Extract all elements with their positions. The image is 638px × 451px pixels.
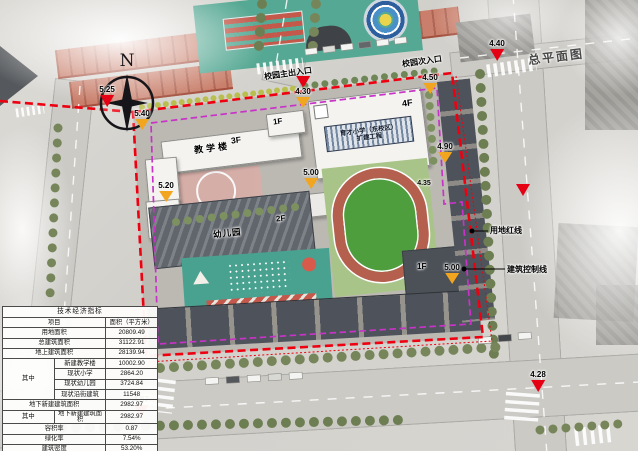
elevation-value: 4.30 <box>295 88 311 97</box>
elevation-value: 4.35 <box>417 180 431 188</box>
elevation-marker-5.20: 5.20 <box>158 182 174 202</box>
elevation-marker-4.28: 4.28 <box>530 371 546 392</box>
elevation-value: 4.50 <box>422 74 438 83</box>
row-label: 绿化率 <box>3 434 106 444</box>
row-value: 3724.84 <box>106 379 158 389</box>
kindergarten-floors-label: 2F <box>276 214 286 224</box>
elevation-marker-5.00-center: 5.00 <box>303 169 319 189</box>
elevation-value: 5.00 <box>303 169 319 178</box>
row-value: 2982.97 <box>106 410 158 424</box>
indicator-table: 技术经济指标 项目 面积（平方米） 用地面积 20809.49 总建筑面积 31… <box>2 306 158 451</box>
row-label: 建筑密度 <box>3 444 106 451</box>
red-triangle-icon <box>531 380 545 392</box>
row-value: 10002.90 <box>106 359 158 369</box>
elevation-value: 5.20 <box>158 182 174 191</box>
row-value: 11548 <box>106 390 158 400</box>
col-header-item: 项目 <box>3 318 106 328</box>
elevation-marker-4.30-main-entrance: 4.30 <box>295 76 311 108</box>
elevation-value: 5.40 <box>134 110 150 119</box>
site-plan-canvas: 育才小学（东校区） 扩建工程 <box>0 0 638 451</box>
east-building-floors-label: 1F <box>417 262 426 271</box>
row-label: 地下新建建筑面积 <box>54 410 106 424</box>
row-value: 31122.91 <box>106 338 158 348</box>
red-triangle-icon <box>516 184 530 196</box>
elevation-marker-4.40: 4.40 <box>489 40 505 61</box>
elevation-marker-5.25: 5.25 <box>99 86 115 107</box>
row-value: 0.87 <box>106 424 158 434</box>
elevation-marker-5.00-east: 5.00 <box>444 264 460 284</box>
row-value: 7.54% <box>106 434 158 444</box>
row-label: 用地面积 <box>3 328 106 338</box>
teaching-floors-label: 3F <box>230 134 241 145</box>
elevation-value: 4.90 <box>437 143 453 152</box>
row-label: 地上建筑面积 <box>3 348 106 358</box>
elevation-value: 5.00 <box>444 264 460 273</box>
building-control-label: 建筑控制线 <box>507 264 547 275</box>
orange-triangle-icon <box>159 191 173 202</box>
row-value: 53.20% <box>106 444 158 451</box>
row-label: 容积率 <box>3 424 106 434</box>
row-label: 总建筑面积 <box>3 338 106 348</box>
elevation-marker-4.35: 4.35 <box>417 180 431 188</box>
table-title: 技术经济指标 <box>3 307 158 318</box>
orange-triangle-icon <box>304 178 318 189</box>
elevation-value: 5.25 <box>99 86 115 95</box>
row-label: 现状沿街建筑 <box>54 390 106 400</box>
site-boundary-label: 用地红线 <box>490 225 522 236</box>
red-triangle-icon <box>100 95 114 107</box>
group-cell: 其中 <box>3 359 55 400</box>
orange-triangle-icon <box>135 119 149 130</box>
extension-floors-label: 4F <box>401 97 413 108</box>
orange-triangle-icon <box>423 83 437 94</box>
col-header-area: 面积（平方米） <box>106 318 158 328</box>
elevation-marker-4.90: 4.90 <box>437 143 453 163</box>
row-label: 现状小学 <box>54 369 106 379</box>
elevation-marker-4.50-secondary-entrance: 4.50 <box>422 74 438 94</box>
road-red-triangle-east <box>516 184 530 196</box>
elevation-marker-5.40: 5.40 <box>134 110 150 130</box>
row-value: 28139.94 <box>106 348 158 358</box>
elevation-value: 4.40 <box>489 40 505 49</box>
elevation-value: 4.28 <box>530 371 546 380</box>
row-value: 2982.97 <box>106 400 158 410</box>
row-label: 地下新建建筑面积 <box>3 400 106 410</box>
row-value: 2864.20 <box>106 369 158 379</box>
orange-triangle-icon <box>445 273 459 284</box>
orange-triangle-icon <box>438 152 452 163</box>
row-value: 20809.49 <box>106 328 158 338</box>
parked-cars-north <box>305 37 407 55</box>
row-label: 现状幼儿园 <box>54 379 106 389</box>
red-triangle-icon <box>490 49 504 61</box>
orange-triangle-icon <box>296 97 310 108</box>
wing-floors-label: 1F <box>272 116 282 126</box>
row-label: 新建教学楼 <box>54 359 106 369</box>
compass-n-label: N <box>120 51 135 71</box>
group-cell: 其中 <box>3 410 55 424</box>
